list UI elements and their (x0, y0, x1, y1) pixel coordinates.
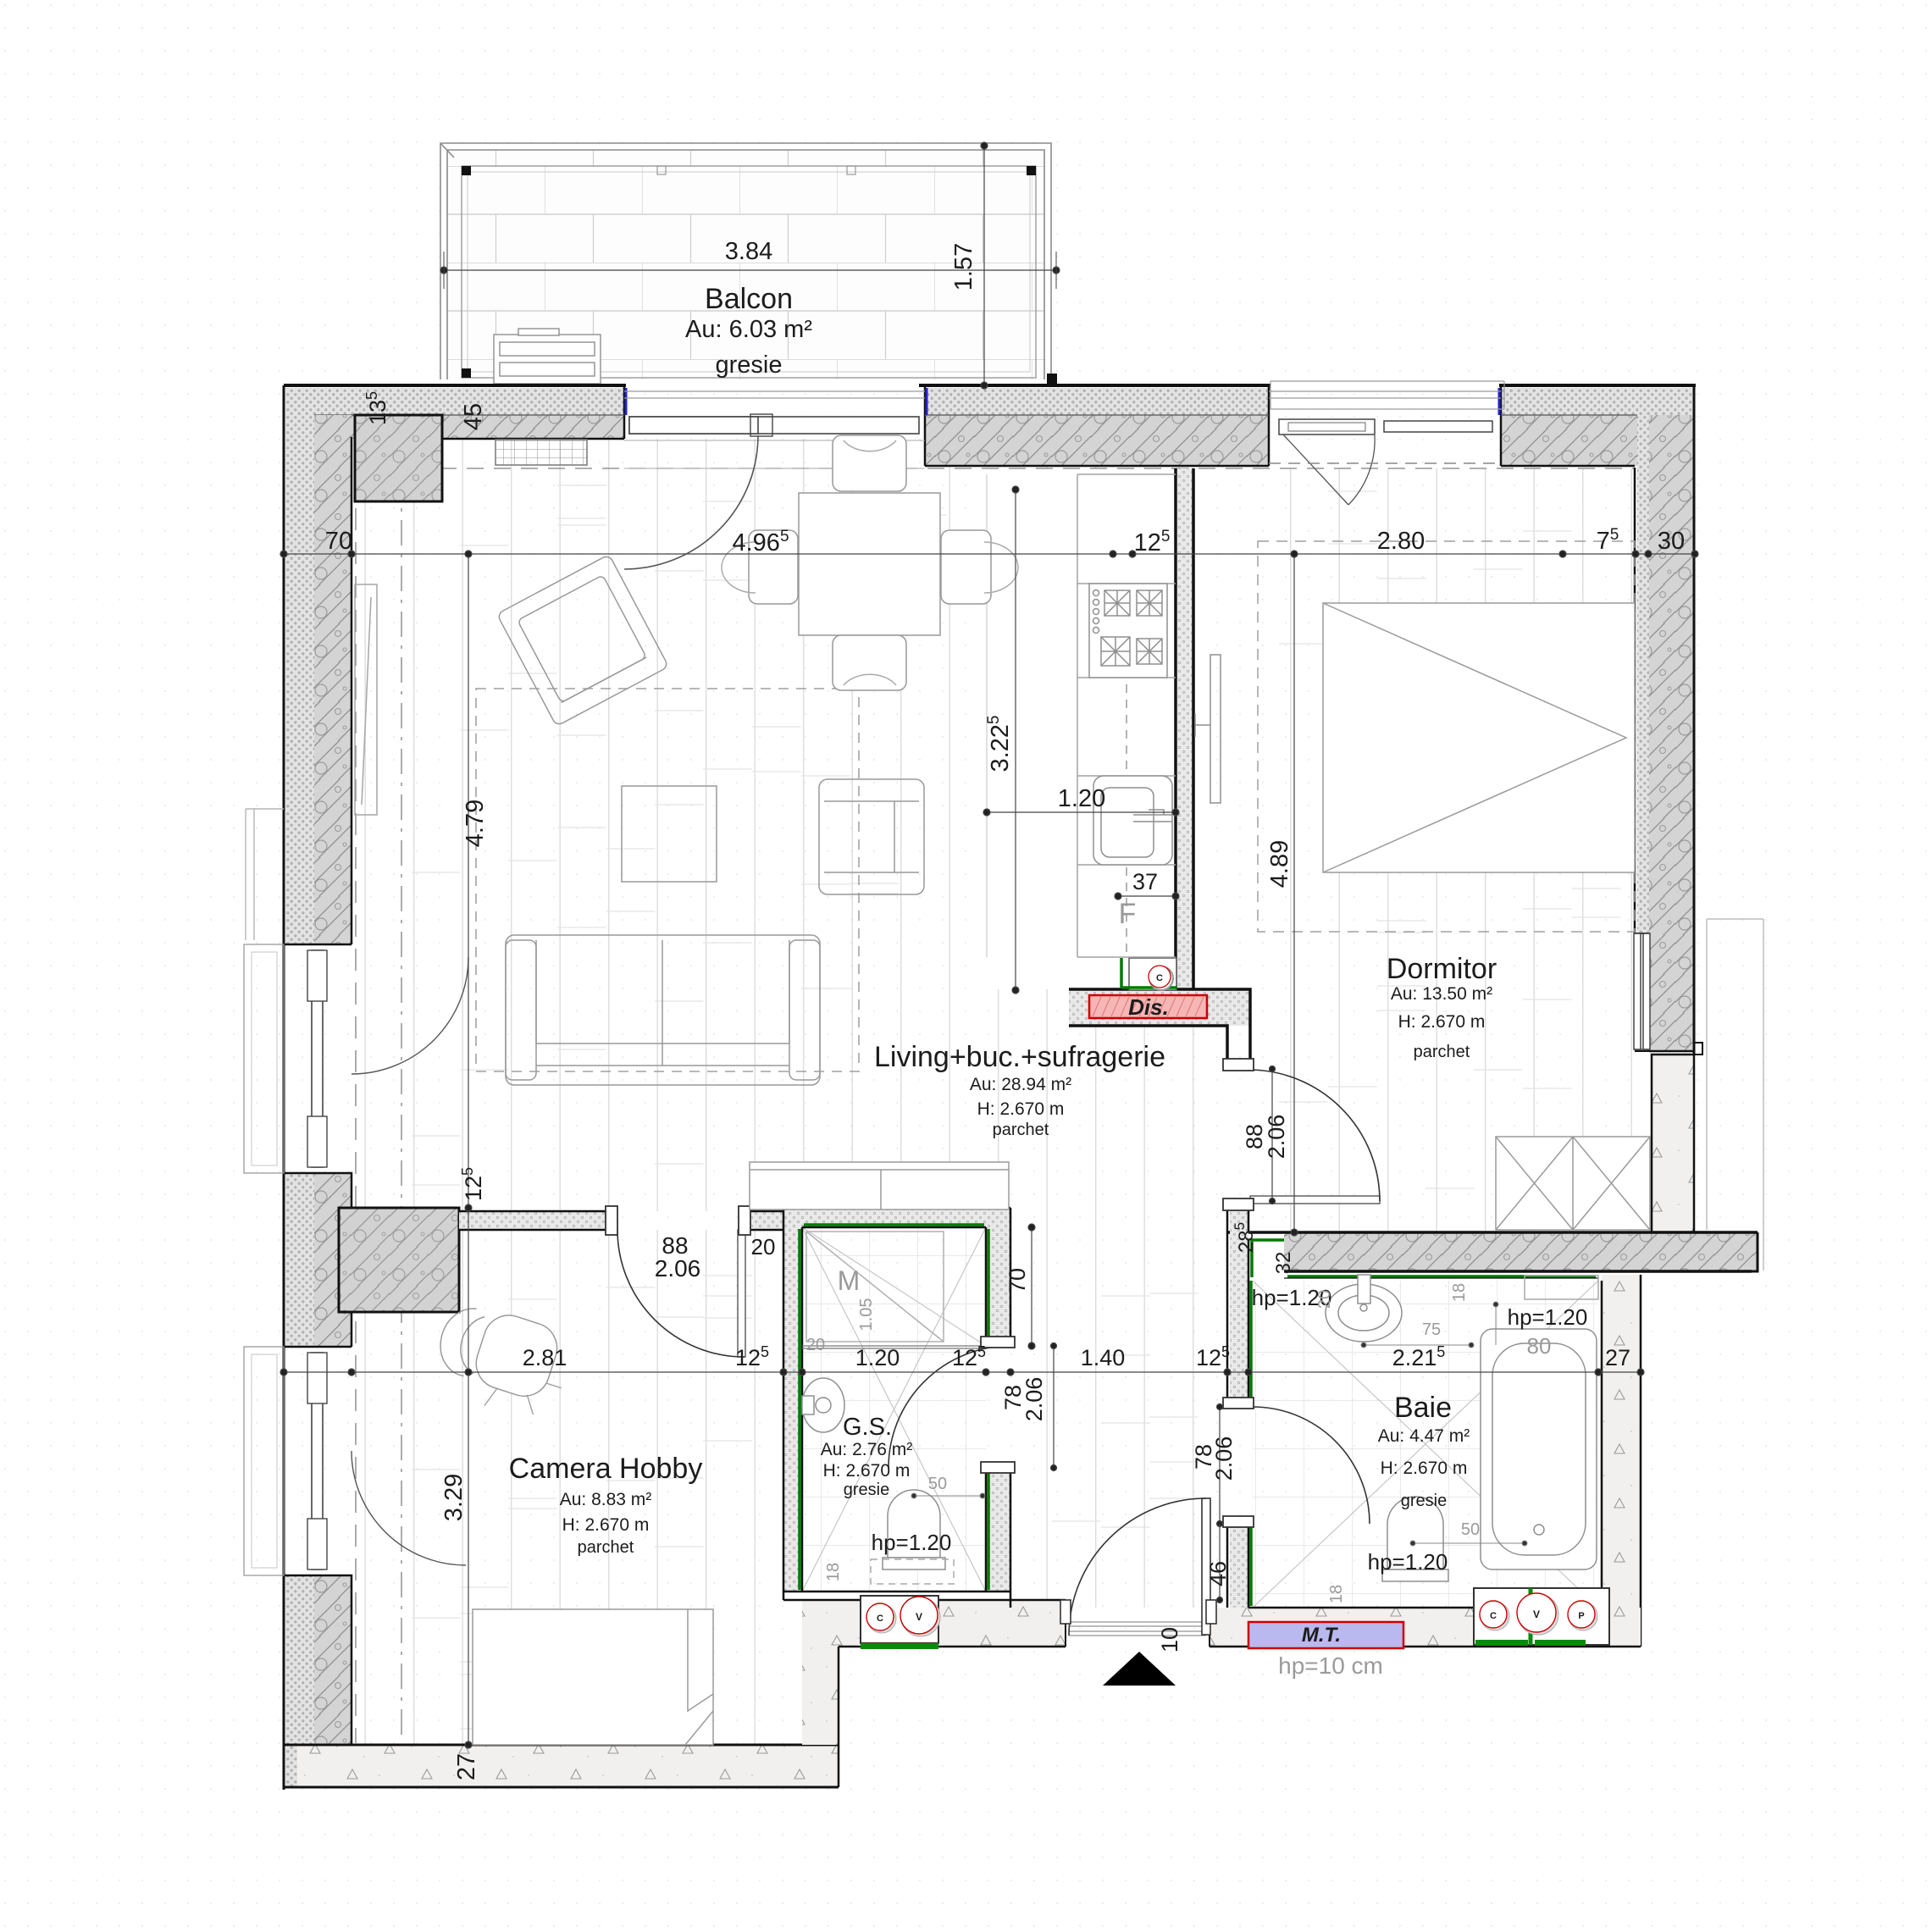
svg-text:Au: 2.76 m²: Au: 2.76 m² (821, 1440, 913, 1459)
svg-text:2.06: 2.06 (1211, 1437, 1237, 1481)
svg-text:H: 2.670 m: H: 2.670 m (562, 1515, 650, 1535)
svg-text:37: 37 (1132, 869, 1158, 894)
svg-text:3.84: 3.84 (725, 238, 772, 265)
svg-text:18: 18 (824, 1563, 843, 1581)
svg-text:parchet: parchet (578, 1538, 634, 1557)
svg-text:27: 27 (453, 1753, 480, 1780)
svg-text:Dis.: Dis. (1128, 994, 1169, 1020)
svg-text:50: 50 (928, 1475, 947, 1493)
svg-text:3.29: 3.29 (440, 1474, 468, 1521)
svg-text:46: 46 (1205, 1561, 1231, 1586)
svg-text:1.40: 1.40 (1081, 1345, 1126, 1370)
svg-text:18: 18 (1450, 1283, 1469, 1302)
svg-text:M.T.: M.T. (1302, 1624, 1341, 1647)
svg-text:70: 70 (325, 528, 352, 555)
svg-text:V: V (916, 1611, 922, 1623)
svg-text:2.81: 2.81 (523, 1345, 567, 1370)
svg-text:hp=1.20: hp=1.20 (1368, 1549, 1448, 1575)
svg-text:2.06: 2.06 (655, 1255, 701, 1282)
svg-text:Au: 6.03 m²: Au: 6.03 m² (685, 316, 812, 343)
svg-text:2.06: 2.06 (1021, 1377, 1047, 1422)
svg-text:32: 32 (1272, 1252, 1295, 1275)
svg-text:Camera Hobby: Camera Hobby (509, 1453, 703, 1485)
svg-text:V: V (1533, 1608, 1540, 1620)
svg-text:H: 2.670 m: H: 2.670 m (1381, 1459, 1468, 1478)
svg-text:Balcon: Balcon (705, 283, 793, 315)
svg-text:H: 2.670 m: H: 2.670 m (1398, 1012, 1486, 1032)
svg-text:2.80: 2.80 (1377, 528, 1425, 555)
svg-text:hp=10 cm: hp=10 cm (1278, 1652, 1383, 1679)
svg-text:20: 20 (1315, 1290, 1334, 1309)
svg-text:50: 50 (1461, 1520, 1480, 1539)
svg-text:70: 70 (1005, 1268, 1030, 1293)
svg-text:hp=1.20: hp=1.20 (1508, 1304, 1588, 1330)
svg-text:C: C (877, 1614, 883, 1624)
svg-text:75: 75 (1422, 1320, 1441, 1339)
svg-text:parchet: parchet (1414, 1043, 1470, 1061)
svg-text:H: 2.670 m: H: 2.670 m (977, 1099, 1065, 1119)
svg-text:H: 2.670 m: H: 2.670 m (823, 1461, 911, 1481)
svg-text:Baie: Baie (1394, 1392, 1452, 1424)
svg-text:Dormitor: Dormitor (1387, 953, 1497, 985)
svg-text:F: F (1119, 898, 1137, 930)
svg-text:Au: 13.50 m²: Au: 13.50 m² (1391, 984, 1492, 1004)
svg-text:C: C (1490, 1611, 1497, 1621)
svg-text:Living+buc.+sufragerie: Living+buc.+sufragerie (874, 1041, 1165, 1073)
svg-text:4.79: 4.79 (462, 800, 489, 847)
svg-text:C: C (1156, 973, 1163, 983)
svg-text:G.S.: G.S. (843, 1414, 892, 1441)
svg-text:parchet: parchet (993, 1121, 1049, 1139)
svg-text:80: 80 (1527, 1333, 1552, 1359)
svg-text:2.06: 2.06 (1264, 1115, 1289, 1160)
svg-text:M: M (838, 1265, 861, 1296)
svg-text:27: 27 (1605, 1345, 1630, 1370)
svg-text:1.20: 1.20 (1058, 785, 1105, 812)
svg-text:1.57: 1.57 (950, 243, 977, 291)
svg-text:P: P (1578, 1611, 1584, 1621)
svg-text:1.05: 1.05 (857, 1298, 876, 1331)
svg-text:10: 10 (1157, 1627, 1182, 1652)
svg-text:20: 20 (751, 1234, 776, 1259)
svg-text:Au: 8.83 m²: Au: 8.83 m² (560, 1490, 652, 1509)
svg-text:4.89: 4.89 (1266, 840, 1293, 888)
svg-text:18: 18 (1327, 1585, 1346, 1603)
svg-text:30: 30 (1658, 528, 1685, 555)
svg-text:45: 45 (460, 403, 487, 430)
svg-text:gresie: gresie (716, 352, 783, 379)
svg-text:gresie: gresie (844, 1481, 889, 1499)
svg-text:gresie: gresie (1401, 1492, 1447, 1510)
svg-text:hp=1.20: hp=1.20 (872, 1530, 952, 1555)
svg-text:20: 20 (806, 1336, 825, 1354)
svg-text:Au: 28.94 m²: Au: 28.94 m² (970, 1075, 1071, 1094)
svg-text:1.20: 1.20 (855, 1345, 900, 1370)
svg-text:Au: 4.47 m²: Au: 4.47 m² (1378, 1426, 1470, 1446)
